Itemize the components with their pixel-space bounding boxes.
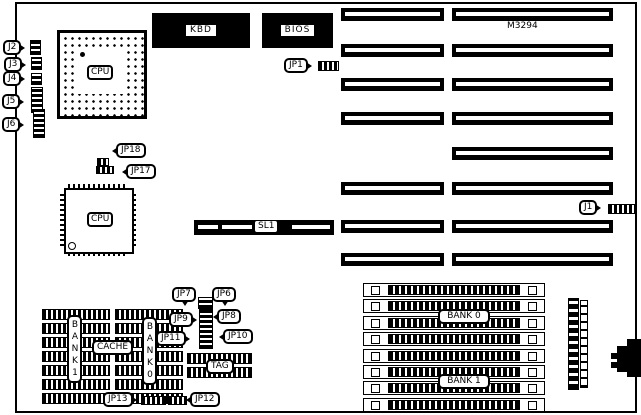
jumper-block-j6 <box>33 109 45 138</box>
cache-label: CACHE <box>92 340 133 355</box>
jumper-label-jp8: JP8 <box>217 309 241 324</box>
isa-slot-8bit-segment <box>452 44 613 57</box>
connector-label-j1: J1 <box>579 200 597 215</box>
connector-label-j6: J6 <box>2 117 20 132</box>
simm-bank0-label: BANK 0 <box>438 309 490 324</box>
isa-slot-16bit-segment <box>341 220 444 233</box>
jumper-label-jp6: JP6 <box>212 287 236 302</box>
jumper-block-j1 <box>608 204 635 214</box>
jumper-block-jp1 <box>318 61 339 71</box>
kbd-rom-label: KBD <box>186 25 216 36</box>
jumper-label-jp1: JP1 <box>284 58 308 73</box>
slot-label-sl1: SL1 <box>254 220 278 233</box>
jumper-label-jp17: JP17 <box>126 164 156 179</box>
bios-rom-label: BIOS <box>281 25 315 36</box>
jumper-label-jp18: JP18 <box>116 143 146 158</box>
cpu-socket: CPU <box>57 30 147 119</box>
connector-label-j3: J3 <box>4 57 22 72</box>
jumper-block-jp13 <box>141 396 166 405</box>
power-connector <box>568 298 588 390</box>
isa-slot-16bit-segment <box>341 253 444 266</box>
bios-rom: BIOS <box>262 13 333 48</box>
keyboard-din-pin <box>611 353 618 359</box>
isa-slot-16bit-segment <box>341 78 444 91</box>
cpu-qfp-chip: CPU <box>64 188 134 254</box>
isa-slot-16bit-segment <box>341 182 444 195</box>
jumper-label-jp9: JP9 <box>169 312 193 327</box>
jumper-block-jp17 <box>96 166 114 174</box>
pin1-mark <box>80 52 85 57</box>
cache-bank1-label: BANK1 <box>67 315 82 383</box>
jumper-label-jp13: JP13 <box>103 392 133 407</box>
isa-slot-8bit-segment <box>452 220 613 233</box>
isa-slot-8bit-segment <box>452 78 613 91</box>
isa-slot-16bit-segment <box>341 112 444 125</box>
simm-slot <box>363 283 545 297</box>
simm-slot <box>363 398 545 412</box>
simm-bank1-label: BANK 1 <box>438 374 490 389</box>
motherboard-diagram: M3294 CPU KBD BIOS JP1 J2 J3 J4 J5 J6 JP… <box>0 0 641 415</box>
keyboard-din-pin <box>611 362 618 368</box>
connector-label-j5: J5 <box>2 94 20 109</box>
isa-slot-8bit-segment <box>452 147 613 160</box>
tag-label: TAG <box>206 359 234 374</box>
isa-slot-8bit-segment <box>452 253 613 266</box>
jumper-label-jp7: JP7 <box>172 287 196 302</box>
simm-slot <box>363 332 545 346</box>
jumper-block-jp6-jp7 <box>198 297 213 309</box>
isa-slot-16bit-segment <box>341 44 444 57</box>
jumper-block-j2 <box>30 40 41 55</box>
isa-slot-8bit-segment <box>452 8 613 21</box>
kbd-rom: KBD <box>152 13 250 48</box>
jumper-label-jp10: JP10 <box>223 329 253 344</box>
jumper-block-jp18 <box>97 158 109 166</box>
isa-slot-8bit-segment <box>452 112 613 125</box>
cpu-socket-label: CPU <box>87 65 113 80</box>
keyboard-din-connector-body <box>627 339 641 377</box>
jumper-block-j4 <box>31 73 42 85</box>
jumper-block-j3 <box>31 57 42 70</box>
cpu-socket-cavity: CPU <box>78 49 124 94</box>
connector-label-j2: J2 <box>3 40 21 55</box>
model-number: M3294 <box>507 21 538 32</box>
cpu-qfp-label: CPU <box>87 212 113 227</box>
isa-slot-8bit-segment <box>452 182 613 195</box>
jumper-label-jp11: JP11 <box>156 331 186 346</box>
jumper-label-jp12: JP12 <box>190 392 220 407</box>
qfp-pin1-mark <box>68 242 76 250</box>
connector-label-j4: J4 <box>3 71 21 86</box>
simm-slot <box>363 349 545 363</box>
cache-bank0-label: BANK0 <box>142 317 157 385</box>
isa-slot-16bit-segment <box>341 8 444 21</box>
vlb-connector-sl1: SL1 <box>194 220 334 235</box>
